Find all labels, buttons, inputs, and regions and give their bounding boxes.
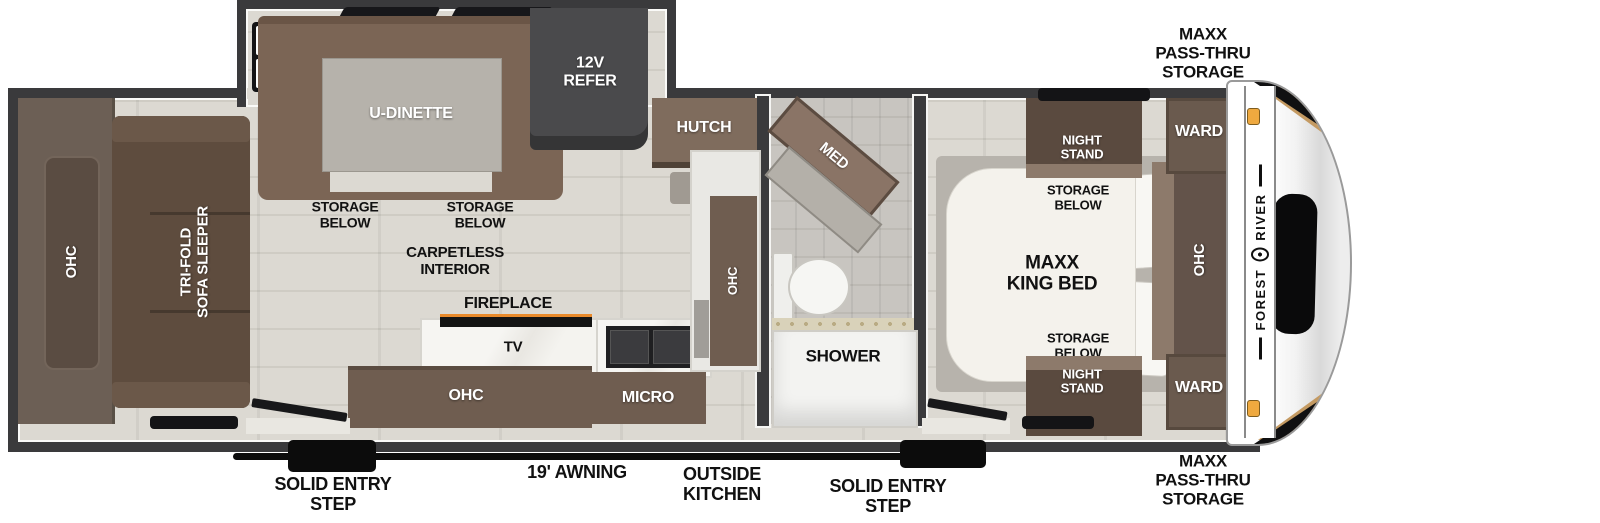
sofa-label: TRI-FOLD SOFA SLEEPER [179,206,212,318]
marker-light-top [1247,108,1260,125]
living-bottom-window [150,416,238,429]
hutch-label: HUTCH [677,119,732,137]
entry-step-right [900,440,986,468]
entry-step-left-label: SOLID ENTRY STEP [274,474,391,514]
brand-rule-right [1259,165,1262,187]
rv-floorplan: OHC TRI-FOLD SOFA SLEEPER U-DINETTE STOR… [0,0,1600,523]
tv-label: TV [504,340,523,357]
medicine-cabinet-label: MED [816,140,852,174]
sofa-arm-top [112,116,250,142]
brand-rule-left [1259,337,1262,359]
night-stand-bottom-label: NIGHT STAND [1061,368,1104,397]
carpetless-interior-label: CARPETLESS INTERIOR [406,245,504,279]
front-cap-windshield-graphic [1270,193,1318,334]
toilet-bowl [788,258,850,316]
shower-label: SHOWER [806,346,881,365]
entry-step-right-label: SOLID ENTRY STEP [829,476,946,516]
u-dinette-opening [330,170,492,192]
u-dinette-label: U-DINETTE [369,105,453,123]
wardrobe-top-label: WARD [1175,123,1223,141]
stove [606,326,696,368]
night-stand-top-label: NIGHT STAND [1061,134,1104,163]
kitchen-side-ohc-label: OHC [726,267,740,295]
awning-label: 19' AWNING [527,462,627,482]
shower-pan [772,330,918,428]
fireplace-insert [440,314,592,327]
shower-threshold [772,318,914,330]
microwave-label: MICRO [622,389,674,407]
pass-thru-storage-label-top: MAXX PASS-THRU STORAGE [1155,24,1250,81]
kitchen-sink-panel [694,300,709,358]
bedroom-top-window [1038,88,1150,101]
kitchen-ohc-label: OHC [449,387,484,405]
bedroom-bottom-window [1022,416,1094,429]
brand-band: FOREST RIVER [1244,86,1276,438]
entry-door-opening-bedroom [922,418,1010,434]
brand-word-river: RIVER [1253,194,1268,241]
bed-storage-below-top-label: STORAGE BELOW [1047,183,1109,212]
stove-burners [610,330,692,364]
sofa-arm-bottom [112,382,250,408]
forest-river-logo-icon [1251,248,1269,262]
rear-ohc-label: OHC [64,246,81,279]
storage-below-left-label: STORAGE BELOW [312,199,379,230]
refrigerator-label: 12V REFER [563,54,616,89]
marker-light-bottom [1247,400,1260,417]
fireplace-label: FIREPLACE [464,295,552,313]
entry-step-left [288,440,376,472]
king-bed-label: MAXX KING BED [1007,253,1098,296]
front-cap: FOREST RIVER [1226,80,1352,446]
entry-door-opening-living [246,418,350,434]
outside-kitchen-label: OUTSIDE KITCHEN [683,464,761,504]
pass-thru-storage-label-bottom: MAXX PASS-THRU STORAGE [1155,451,1250,508]
wardrobe-bottom-label: WARD [1175,379,1223,397]
storage-below-right-label: STORAGE BELOW [447,199,514,230]
brand-text: FOREST RIVER [1251,165,1269,360]
front-ohc-label: OHC [1192,244,1209,277]
brand-word-forest: FOREST [1253,269,1268,331]
